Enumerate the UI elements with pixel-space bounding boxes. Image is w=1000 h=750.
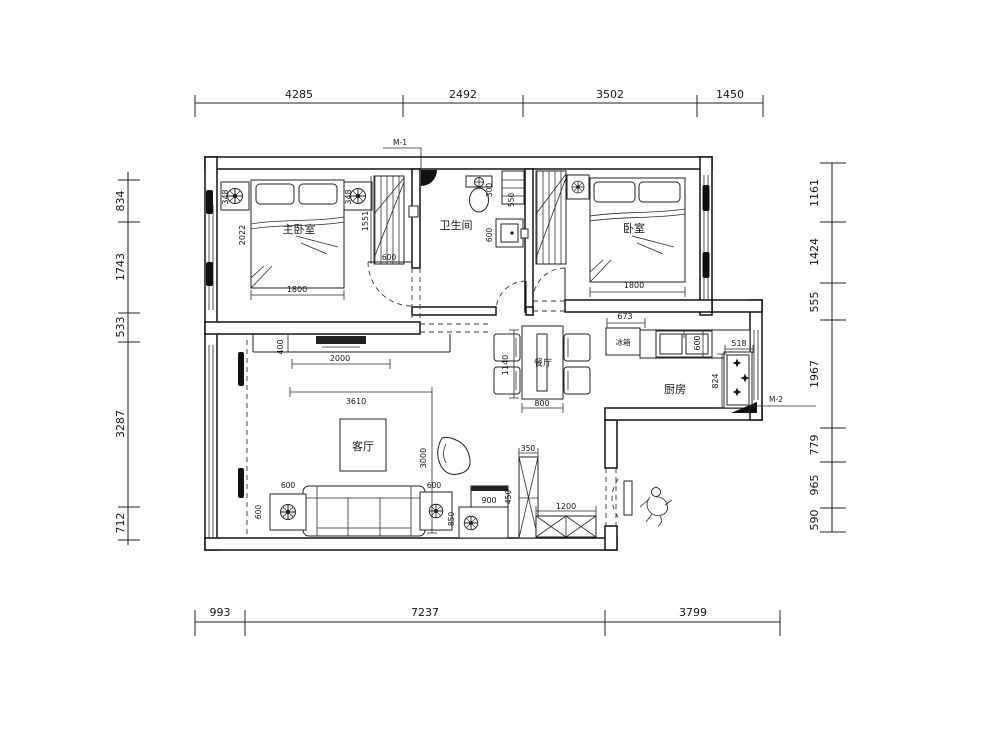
door-tag-kitchen: M-2 (769, 395, 783, 404)
dim-bottom-3: 3799 (679, 606, 707, 619)
dim-smudge (238, 468, 244, 498)
opening-bedroom2 (533, 301, 565, 311)
dim-top-4: 1450 (716, 88, 744, 101)
room-label-bathroom: 卫生间 (440, 218, 473, 232)
entry-area: 900 450 350 1200 (459, 444, 672, 538)
dim-350: 350 (521, 444, 536, 453)
dim-824: 824 (711, 373, 720, 388)
dim-table-r2: 850 (447, 512, 456, 527)
dim-bed1-length: 2022 (238, 225, 247, 245)
shower-box (496, 219, 528, 247)
room-label-bedroom1: 主卧室 (283, 222, 316, 236)
room-label-kitchen: 厨房 (664, 383, 686, 396)
dim-right-4: 1967 (808, 360, 821, 388)
dim-right-5: 779 (808, 435, 821, 456)
dim-smudge (703, 185, 710, 211)
door-arc-bathroom (496, 281, 526, 311)
pillow (639, 182, 680, 202)
tv (316, 336, 366, 344)
dim-table-l: 600 (281, 481, 296, 490)
dim-wardrobe1-width: 600 (382, 253, 397, 262)
floor-plan-canvas: 4285 2492 3502 1450 993 7237 3799 834 17… (0, 0, 1000, 750)
pillow (256, 184, 294, 204)
fridge-label: 冰箱 (616, 337, 631, 347)
dim-top-1: 4285 (285, 88, 313, 101)
dim-800: 800 (534, 399, 549, 408)
entry-door-arc (612, 479, 618, 517)
dim-smudge (703, 252, 710, 278)
dim-673: 673 (617, 312, 632, 321)
lamp-icon (281, 505, 296, 520)
dim-right-1: 1161 (808, 179, 821, 207)
dim-1200: 1200 (556, 502, 576, 511)
wall-fixture (409, 206, 418, 217)
dim-450: 450 (504, 490, 513, 505)
dim-bottom-1: 993 (210, 606, 231, 619)
corner-shower-icon (421, 170, 437, 186)
sink-double (656, 331, 712, 357)
dim-bath-600: 600 (485, 228, 494, 243)
dim-right-3: 555 (808, 292, 821, 313)
dim-table-r: 600 (427, 481, 442, 490)
opening-entry (606, 468, 616, 526)
armchair (438, 437, 470, 474)
dim-left-3: 533 (114, 317, 127, 338)
dim-1140: 1140 (501, 355, 510, 375)
dim-left-1: 834 (114, 191, 127, 212)
dining-room: 餐厅 1140 800 冰箱 (494, 326, 640, 408)
dim-smudge (206, 190, 213, 214)
dim-left-2: 1743 (114, 253, 127, 281)
dim-900: 900 (481, 496, 496, 505)
person-plant-figure (640, 488, 672, 527)
dim-bed1-width: 1800 (287, 285, 307, 294)
dim-wardrobe1: 1551 (361, 211, 370, 231)
pillow (594, 182, 635, 202)
dim-right-7: 590 (808, 510, 821, 531)
room-label-bedroom2: 卧室 (623, 221, 645, 235)
door-arc-bedroom1 (368, 262, 412, 306)
pillow (299, 184, 337, 204)
shoe-cabinet (519, 457, 538, 538)
dim-2000: 2000 (330, 354, 350, 363)
opening-hall (420, 324, 492, 332)
dimension-chain-right: 1161 1424 555 1967 779 965 590 (808, 163, 846, 532)
bench (536, 516, 596, 537)
room-label-dining: 餐厅 (534, 357, 552, 369)
sofa (303, 486, 425, 536)
dim-518: 518 (731, 339, 746, 348)
lamp-icon (429, 504, 443, 518)
cabinet-900: 900 (471, 486, 508, 507)
entry-door-leaf (624, 481, 632, 515)
dim-348-right: 348 (344, 189, 353, 204)
dim-bed2-width: 1800 (624, 281, 644, 290)
dim-3000: 3000 (419, 448, 428, 468)
dim-348-left: 348 (221, 189, 230, 204)
dim-3610: 3610 (346, 397, 366, 406)
dim-top-3: 3502 (596, 88, 624, 101)
kitchen: M-2 厨房 600 518 824 (640, 330, 816, 413)
dim-kitchen-600: 600 (693, 335, 702, 350)
bedroom1: 主卧室 348 348 2022 1800 1551 600 (221, 176, 404, 294)
dim-bath-550: 550 (507, 193, 516, 208)
dim-top-2: 2492 (449, 88, 477, 101)
dimension-chain-left: 834 1743 533 3287 712 (114, 172, 140, 545)
bathroom: 卫生间 300 550 600 M-1 (383, 138, 528, 247)
door-tag-top: M-1 (393, 138, 407, 147)
floor-plan-page: 4285 2492 3502 1450 993 7237 3799 834 17… (0, 0, 1000, 750)
lamp-icon (464, 516, 478, 530)
dim-table-l2: 600 (254, 505, 263, 520)
dim-right-6: 965 (808, 475, 821, 496)
dimension-chain-bottom: 993 7237 3799 (195, 606, 780, 636)
lamp-icon (572, 181, 584, 193)
room-label-living: 客厅 (352, 439, 374, 453)
stove (724, 352, 752, 408)
dim-bottom-2: 7237 (411, 606, 439, 619)
dim-smudge (238, 352, 244, 386)
dim-smudge (206, 262, 213, 286)
dimension-chain-top: 4285 2492 3502 1450 (195, 88, 763, 117)
dim-bath-300: 300 (485, 183, 494, 198)
door-arc-bedroom2 (533, 268, 565, 300)
dim-left-5: 712 (114, 513, 127, 534)
dim-left-4: 3287 (114, 410, 127, 438)
bedroom2: 卧室 1800 673 (536, 171, 685, 321)
dim-right-2: 1424 (808, 238, 821, 266)
